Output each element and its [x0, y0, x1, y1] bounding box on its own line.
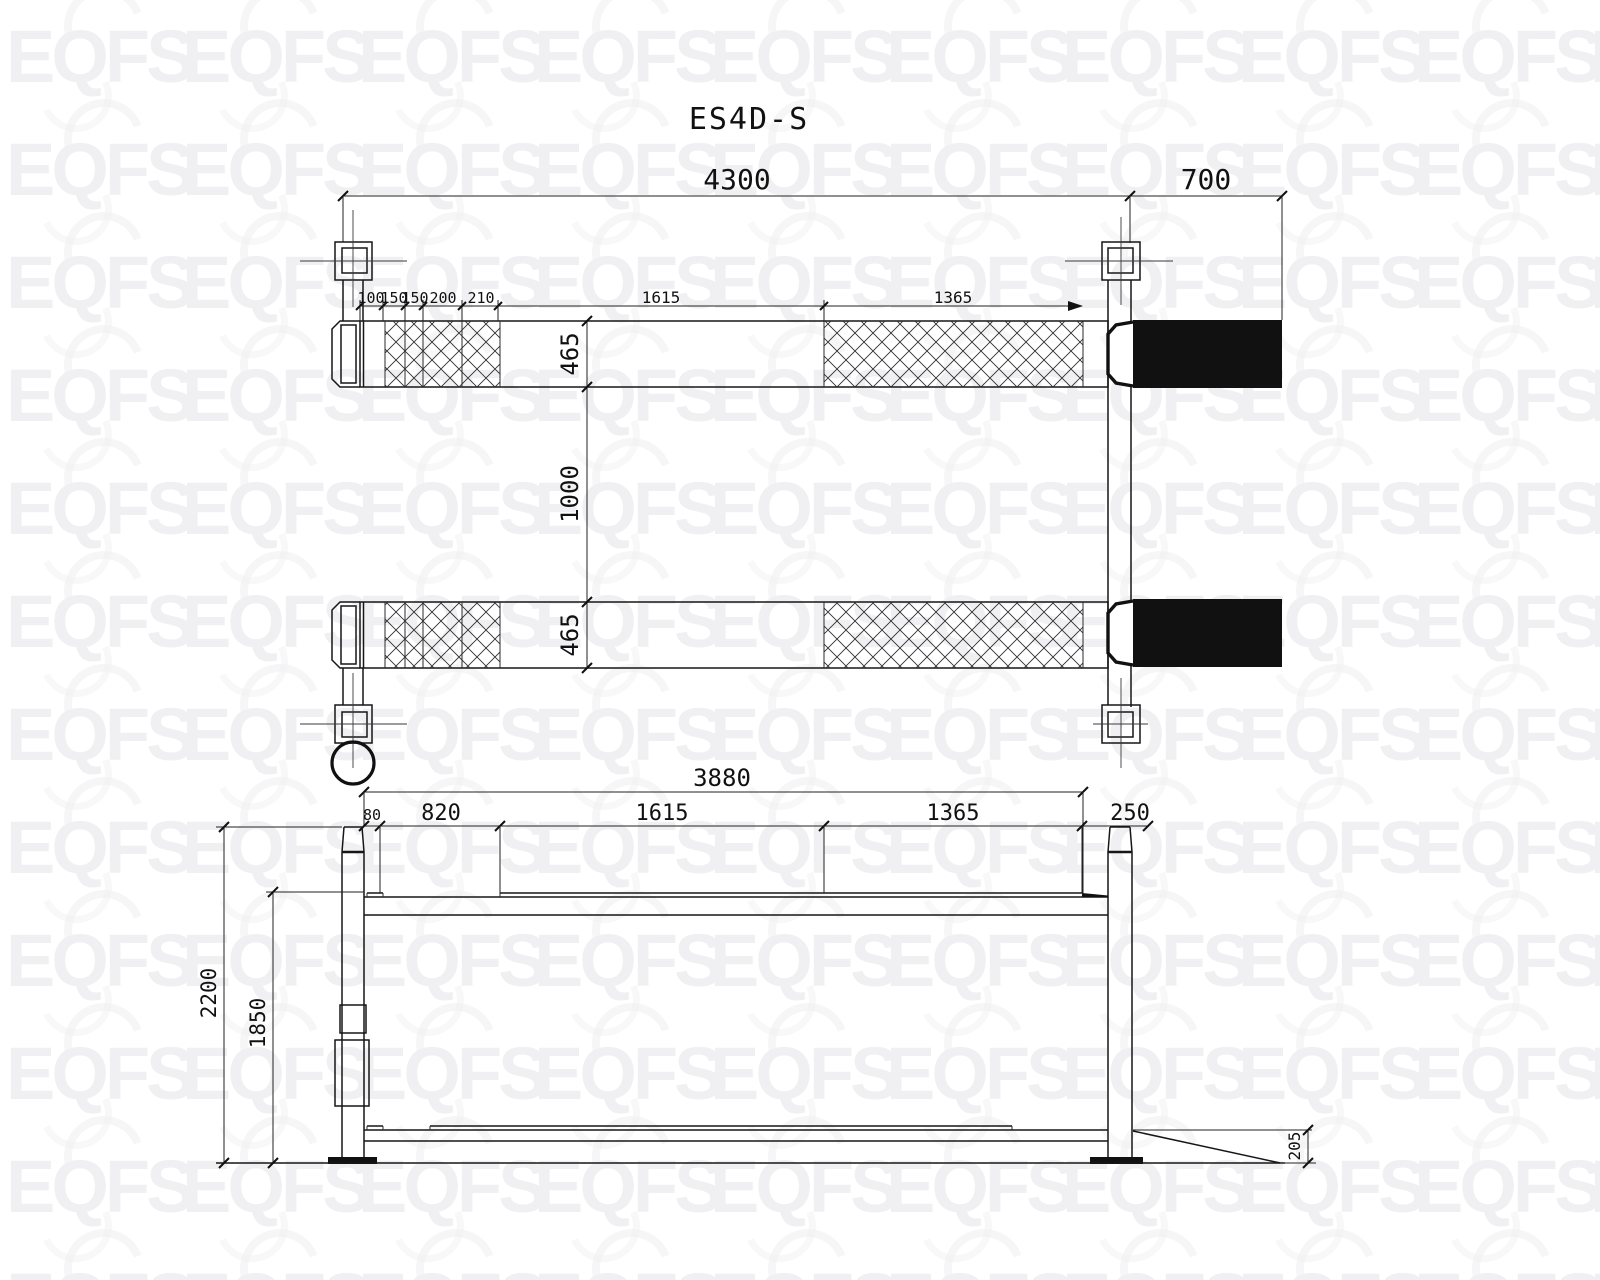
drawing-sheet: EQFSEQFSEQFSEQFSEQFSEQFSEQFSEQFSEQFSEQFS…: [0, 0, 1600, 1280]
dim-side-1365: 1365: [927, 801, 980, 826]
plan-view: 4300 700: [300, 163, 1287, 784]
runway-bottom: [332, 602, 1108, 668]
overall-height-dimension: 2200: [197, 822, 342, 1168]
dim-3880: 3880: [693, 764, 751, 792]
dim-205: 205: [1285, 1132, 1304, 1161]
runway-top: [332, 321, 1108, 387]
dim-1850: 1850: [246, 998, 270, 1049]
ramp-top-plan: [1108, 320, 1282, 388]
dim-200: 200: [429, 289, 456, 307]
dim-2200: 2200: [197, 968, 221, 1019]
dim-150b: 150: [401, 289, 428, 307]
side-base-frame: [364, 1126, 1108, 1141]
plan-post-top-right: [1065, 217, 1173, 305]
dim-80: 80: [363, 806, 381, 824]
plan-chain-dimension: 100 150 150 200 210 1615 1365: [356, 288, 1083, 321]
dim-plan-1615: 1615: [642, 288, 681, 307]
side-post-right: [1090, 827, 1143, 1164]
dim-820: 820: [421, 801, 461, 826]
ramp-height-dimension: 205: [1285, 1125, 1313, 1168]
clearance-height-dimension: 1850: [246, 887, 364, 1168]
side-view: 3880 80 820 1615 1365 250: [197, 764, 1316, 1168]
plan-post-bottom-right: [1093, 678, 1148, 768]
dim-side-1615: 1615: [636, 801, 689, 826]
plan-width-dimension: 465 1000 465: [556, 316, 592, 673]
dim-700: 700: [1181, 163, 1232, 196]
dim-465-rear: 465: [556, 613, 584, 656]
side-post-left: [328, 827, 377, 1164]
drawing-title: ES4D-S: [689, 102, 809, 137]
plan-post-bottom-left: [300, 668, 407, 784]
dim-210: 210: [467, 289, 494, 307]
dim-250: 250: [1110, 801, 1150, 826]
safety-lock-box: [340, 1005, 366, 1033]
ramp-bottom-plan: [1108, 599, 1282, 667]
dim-4300: 4300: [703, 163, 770, 196]
side-overall-dimension: 3880: [359, 764, 1088, 893]
dim-465-front: 465: [556, 332, 584, 375]
side-deck: [364, 893, 1108, 915]
side-chain-dimension: 80 820 1615 1365 250: [359, 801, 1153, 893]
dim-plan-1365: 1365: [934, 288, 973, 307]
dim-1000: 1000: [556, 465, 584, 523]
technical-drawing: ES4D-S 4300 700: [0, 0, 1600, 1280]
